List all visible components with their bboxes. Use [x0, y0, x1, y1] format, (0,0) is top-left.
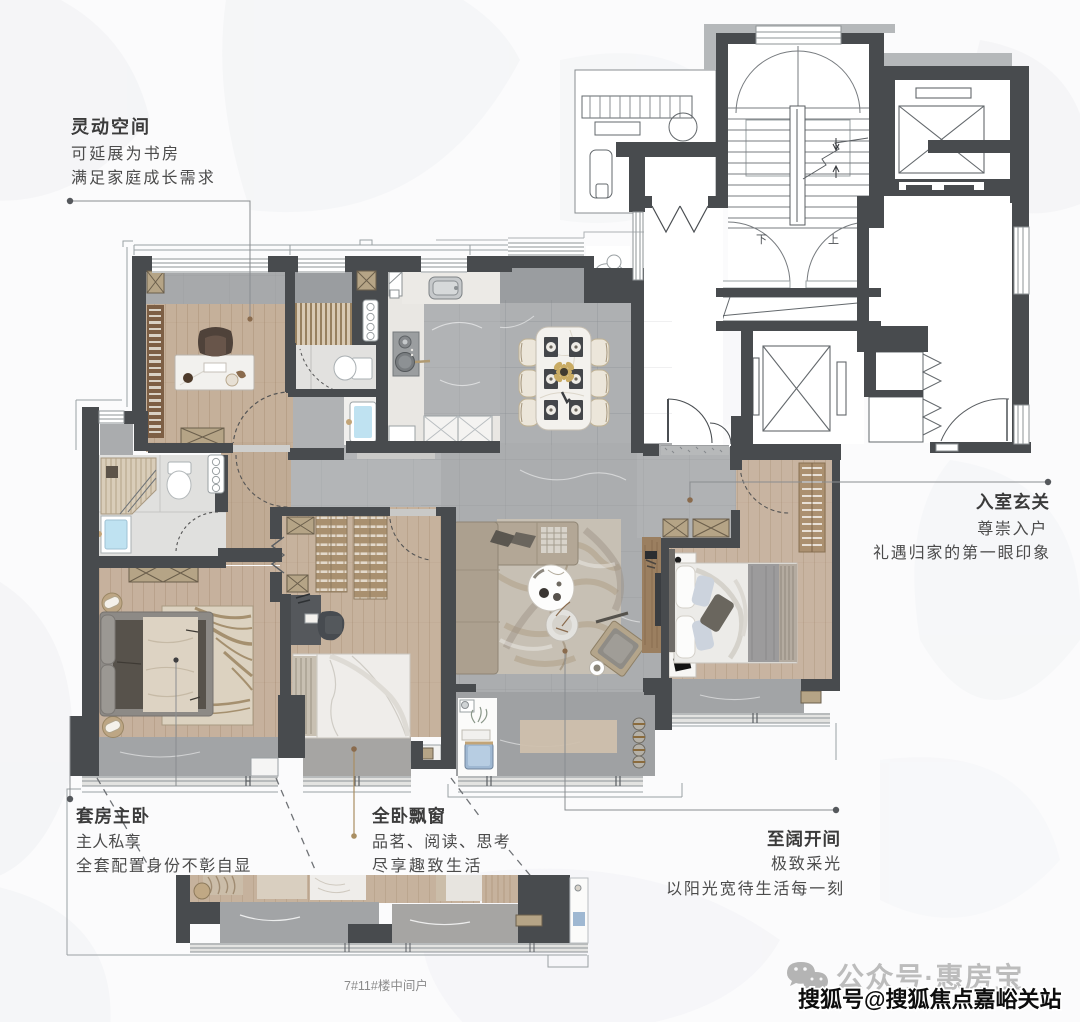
svg-text:以阳光宽待生活每一刻: 以阳光宽待生活每一刻	[666, 880, 845, 898]
svg-text:礼遇归家的第一眼印象: 礼遇归家的第一眼印象	[873, 544, 1051, 562]
svg-text:入室玄关: 入室玄关	[976, 492, 1050, 512]
svg-text:尊崇入户: 尊崇入户	[977, 520, 1048, 538]
svg-text:7#11#楼中间户: 7#11#楼中间户	[344, 978, 428, 993]
svg-text:可延展为书房: 可延展为书房	[71, 145, 180, 163]
svg-text:全套配置身份不彰自显: 全套配置身份不彰自显	[76, 856, 252, 875]
svg-text:全卧飘窗: 全卧飘窗	[371, 806, 446, 826]
svg-text:套房主卧: 套房主卧	[75, 806, 150, 826]
svg-text:主人私享: 主人私享	[76, 833, 141, 851]
svg-text:尽享趣致生活: 尽享趣致生活	[372, 857, 483, 875]
svg-text:满足家庭成长需求: 满足家庭成长需求	[71, 169, 216, 187]
svg-text:极致采光: 极致采光	[771, 855, 842, 873]
svg-text:品茗、阅读、思考: 品茗、阅读、思考	[372, 833, 511, 851]
svg-text:灵动空间: 灵动空间	[71, 116, 151, 137]
svg-text:至阔开间: 至阔开间	[767, 829, 841, 849]
svg-text:下: 下	[756, 234, 767, 246]
svg-text:上: 上	[828, 233, 839, 246]
svg-text:搜狐号@搜狐焦点嘉峪关站: 搜狐号@搜狐焦点嘉峪关站	[798, 987, 1061, 1012]
